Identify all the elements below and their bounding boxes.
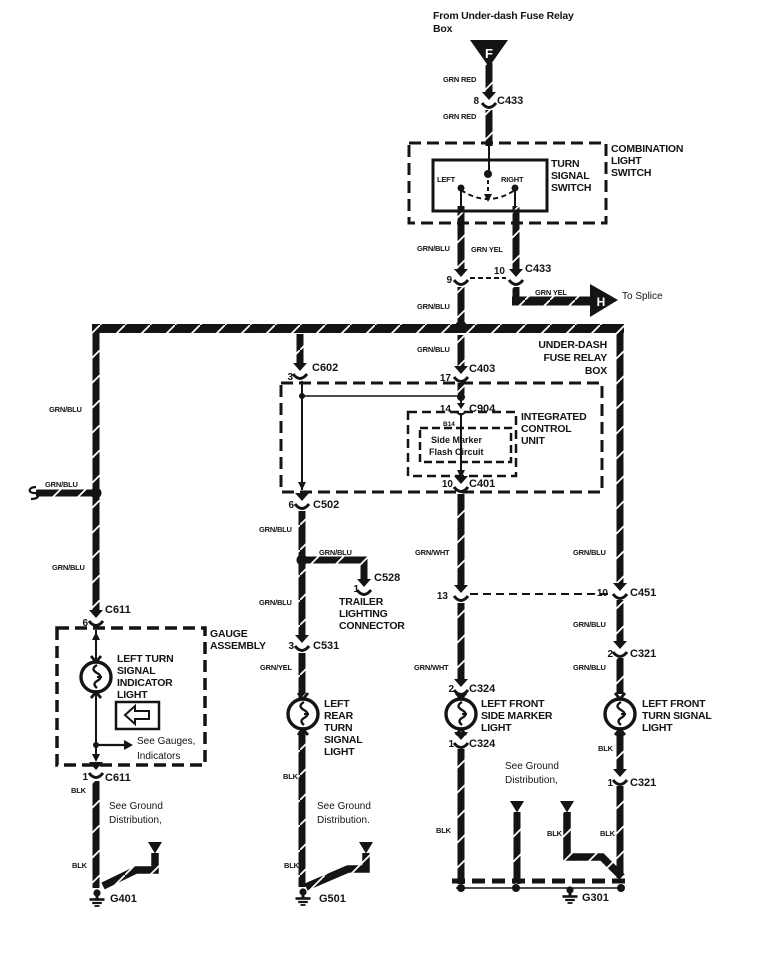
svg-text:SIGNAL: SIGNAL — [551, 170, 590, 182]
svg-text:GRN YEL: GRN YEL — [471, 245, 503, 254]
svg-text:INDICATOR: INDICATOR — [117, 677, 173, 689]
svg-text:UNDER-DASH: UNDER-DASH — [538, 339, 607, 351]
svg-text:GRN/BLU: GRN/BLU — [259, 525, 292, 534]
svg-text:GRN/BLU: GRN/BLU — [45, 480, 78, 489]
svg-text:C403: C403 — [469, 363, 495, 375]
svg-text:10: 10 — [597, 588, 609, 599]
svg-text:C433: C433 — [525, 263, 551, 275]
svg-text:SIGNAL: SIGNAL — [324, 734, 363, 746]
svg-text:BOX: BOX — [585, 365, 607, 377]
svg-text:CONNECTOR: CONNECTOR — [339, 620, 405, 632]
svg-text:3: 3 — [288, 641, 294, 652]
svg-text:C528: C528 — [374, 572, 400, 584]
svg-text:C531: C531 — [313, 640, 339, 652]
svg-text:GRN/BLU: GRN/BLU — [52, 563, 85, 572]
svg-text:TURN: TURN — [551, 158, 579, 170]
svg-text:LIGHT: LIGHT — [481, 722, 512, 734]
svg-text:GRN/BLU: GRN/BLU — [417, 302, 450, 311]
svg-text:GRN/WHT: GRN/WHT — [414, 663, 449, 672]
svg-text:1: 1 — [448, 739, 454, 750]
svg-text:C433: C433 — [497, 95, 523, 107]
svg-text:C904: C904 — [469, 403, 496, 415]
svg-text:INTEGRATED: INTEGRATED — [521, 411, 587, 423]
svg-text:Distribution.: Distribution. — [317, 815, 370, 826]
svg-text:2: 2 — [448, 684, 454, 695]
svg-text:GRN/BLU: GRN/BLU — [49, 405, 82, 414]
svg-text:BLK: BLK — [71, 786, 87, 795]
svg-text:H: H — [597, 295, 606, 309]
svg-text:SIGNAL: SIGNAL — [117, 665, 156, 677]
svg-text:GRN/BLU: GRN/BLU — [573, 548, 606, 557]
svg-text:BLK: BLK — [598, 744, 614, 753]
svg-text:From Under-dash Fuse Relay: From Under-dash Fuse Relay — [433, 10, 574, 22]
svg-text:6: 6 — [82, 618, 88, 629]
svg-text:6: 6 — [288, 500, 294, 511]
svg-text:13: 13 — [437, 591, 449, 602]
svg-text:LIGHT: LIGHT — [642, 722, 673, 734]
svg-text:Distribution,: Distribution, — [505, 775, 558, 786]
svg-text:Distribution,: Distribution, — [109, 815, 162, 826]
svg-text:See Ground: See Ground — [109, 801, 163, 812]
svg-text:1: 1 — [353, 584, 359, 595]
svg-text:FUSE RELAY: FUSE RELAY — [543, 352, 607, 364]
svg-text:G401: G401 — [110, 893, 137, 905]
svg-text:GRN/BLU: GRN/BLU — [573, 620, 606, 629]
svg-text:C321: C321 — [630, 648, 656, 660]
svg-text:10: 10 — [494, 266, 506, 277]
svg-text:See Gauges,: See Gauges, — [137, 736, 195, 747]
svg-text:GRN/BLU: GRN/BLU — [417, 244, 450, 253]
svg-text:GRN/BLU: GRN/BLU — [573, 663, 606, 672]
svg-text:C502: C502 — [313, 499, 339, 511]
svg-text:LIGHT: LIGHT — [117, 689, 148, 701]
svg-text:See Ground: See Ground — [317, 801, 371, 812]
svg-text:G501: G501 — [319, 893, 346, 905]
svg-text:LEFT FRONT: LEFT FRONT — [642, 698, 706, 710]
svg-text:GRN/BLU: GRN/BLU — [319, 548, 352, 557]
svg-text:ASSEMBLY: ASSEMBLY — [210, 640, 266, 652]
svg-text:LIGHT: LIGHT — [324, 746, 355, 758]
svg-text:TURN: TURN — [324, 722, 352, 734]
svg-text:1: 1 — [607, 778, 613, 789]
svg-text:BLK: BLK — [72, 861, 88, 870]
svg-text:BLK: BLK — [284, 861, 300, 870]
svg-text:Indicators: Indicators — [137, 751, 180, 762]
svg-text:GRN/YEL: GRN/YEL — [260, 663, 293, 672]
svg-text:TURN SIGNAL: TURN SIGNAL — [642, 710, 712, 722]
svg-text:LIGHTING: LIGHTING — [339, 608, 388, 620]
svg-text:C611: C611 — [105, 604, 131, 616]
svg-text:BLK: BLK — [547, 829, 563, 838]
svg-text:3: 3 — [287, 372, 293, 383]
svg-text:LEFT FRONT: LEFT FRONT — [481, 698, 545, 710]
svg-text:C602: C602 — [312, 362, 338, 374]
svg-text:LEFT: LEFT — [324, 698, 350, 710]
svg-text:GRN YEL: GRN YEL — [535, 288, 567, 297]
svg-text:To Splice: To Splice — [622, 291, 663, 302]
svg-text:LEFT: LEFT — [437, 175, 456, 184]
svg-text:17: 17 — [440, 373, 452, 384]
svg-text:C324: C324 — [469, 683, 496, 695]
svg-text:GRN RED: GRN RED — [443, 75, 477, 84]
svg-text:CONTROL: CONTROL — [521, 423, 572, 435]
svg-text:B14: B14 — [443, 421, 455, 428]
svg-text:UNIT: UNIT — [521, 435, 545, 447]
svg-text:Box: Box — [433, 23, 453, 35]
svg-text:G301: G301 — [582, 892, 609, 904]
svg-text:BLK: BLK — [283, 772, 299, 781]
svg-text:COMBINATION: COMBINATION — [611, 143, 683, 155]
svg-text:LEFT TURN: LEFT TURN — [117, 653, 174, 665]
svg-text:BLK: BLK — [600, 829, 616, 838]
svg-text:9: 9 — [446, 275, 452, 286]
svg-text:C324: C324 — [469, 738, 496, 750]
svg-text:1: 1 — [82, 772, 88, 783]
svg-text:GRN RED: GRN RED — [443, 112, 477, 121]
svg-text:SWITCH: SWITCH — [551, 182, 591, 194]
svg-text:F: F — [485, 46, 493, 61]
svg-text:See Ground: See Ground — [505, 761, 559, 772]
svg-text:SIDE MARKER: SIDE MARKER — [481, 710, 553, 722]
svg-text:LIGHT: LIGHT — [611, 155, 642, 167]
svg-text:Flash Circuit: Flash Circuit — [429, 447, 484, 457]
svg-text:14: 14 — [440, 404, 452, 415]
svg-text:C611: C611 — [105, 772, 131, 784]
svg-text:C401: C401 — [469, 478, 495, 490]
svg-text:GRN/WHT: GRN/WHT — [415, 548, 450, 557]
svg-text:Side Marker: Side Marker — [431, 435, 483, 445]
svg-text:GAUGE: GAUGE — [210, 628, 248, 640]
svg-text:SWITCH: SWITCH — [611, 167, 651, 179]
svg-text:10: 10 — [442, 479, 454, 490]
svg-text:BLK: BLK — [436, 826, 452, 835]
svg-text:TRAILER: TRAILER — [339, 596, 384, 608]
svg-text:2: 2 — [607, 649, 613, 660]
svg-text:GRN/BLU: GRN/BLU — [259, 598, 292, 607]
svg-text:8: 8 — [473, 96, 479, 107]
svg-text:C451: C451 — [630, 587, 656, 599]
svg-text:REAR: REAR — [324, 710, 354, 722]
svg-text:RIGHT: RIGHT — [501, 175, 524, 184]
svg-text:C321: C321 — [630, 777, 656, 789]
svg-text:GRN/BLU: GRN/BLU — [417, 345, 450, 354]
